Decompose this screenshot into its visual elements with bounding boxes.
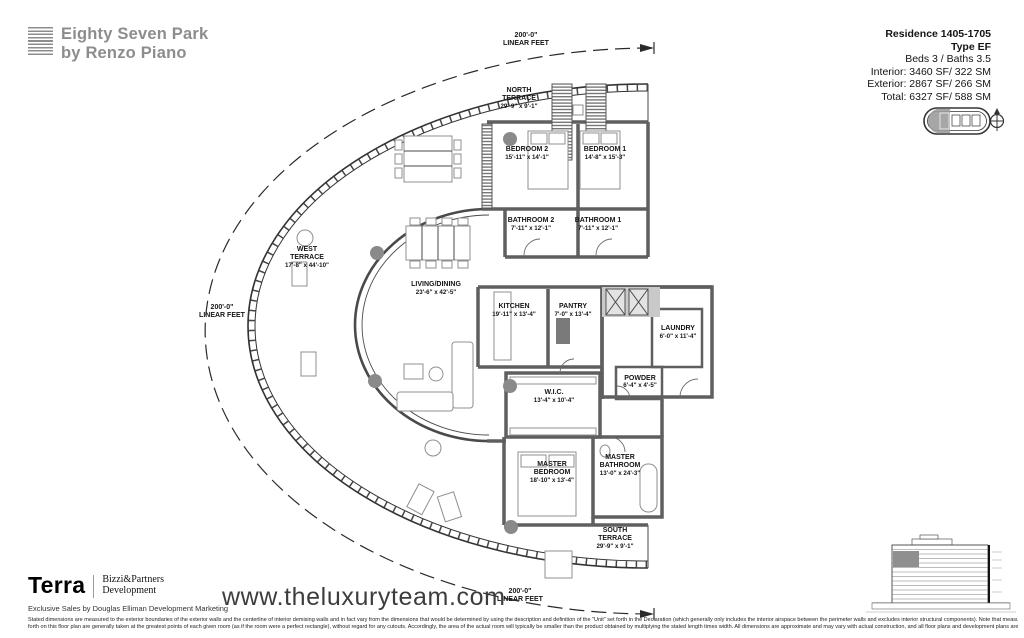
bathtub <box>640 464 657 512</box>
svg-text:6'-0" x 11'-4": 6'-0" x 11'-4" <box>660 333 697 340</box>
room-label-master-bathroom: MASTER BATHROOM 13'-0" x 24'-3" <box>600 454 641 477</box>
svg-text:MASTER: MASTER <box>537 461 567 468</box>
disclaimer-line2: forth on this floor plan are generally t… <box>28 624 1018 631</box>
svg-text:29'-9" x 9'-1": 29'-9" x 9'-1" <box>500 103 537 110</box>
room-label-kitchen: KITCHEN 19'-11" x 13'-4" <box>492 303 536 318</box>
room-label-laundry: LAUNDRY 6'-0" x 11'-4" <box>660 325 697 340</box>
svg-text:TERRACE: TERRACE <box>290 254 324 261</box>
room-label-living-dining: LIVING/DINING 23'-6" x 42'-5" <box>411 281 461 296</box>
room-label-pantry: PANTRY 7'-0" x 13'-4" <box>554 303 591 318</box>
residence-exterior-area: Exterior: 2867 SF/ 266 SM <box>867 78 991 91</box>
residence-beds-baths: Beds 3 / Baths 3.5 <box>867 53 991 66</box>
svg-text:SOUTH: SOUTH <box>603 527 628 534</box>
svg-text:TERRACE: TERRACE <box>502 95 536 102</box>
svg-text:BEDROOM 1: BEDROOM 1 <box>584 146 627 153</box>
svg-text:17'-8" x 44'-10": 17'-8" x 44'-10" <box>285 262 329 269</box>
legal-disclaimer: Stated dimensions are measured to the ex… <box>28 617 1018 631</box>
svg-text:BEDROOM 2: BEDROOM 2 <box>506 146 549 153</box>
svg-text:LAUNDRY: LAUNDRY <box>661 325 695 332</box>
svg-text:15'-11" x 14'-1": 15'-11" x 14'-1" <box>505 154 549 161</box>
terra-logo: Terra <box>28 573 85 597</box>
room-label-north-terrace: NORTH TERRACE 29'-9" x 9'-1" <box>500 87 537 110</box>
elevation-floor-highlight <box>893 551 919 567</box>
disclaimer-line1: Stated dimensions are measured to the ex… <box>28 617 1018 624</box>
svg-text:BEDROOM: BEDROOM <box>534 469 571 476</box>
svg-text:13'-0" x 24'-3": 13'-0" x 24'-3" <box>600 470 641 477</box>
svg-text:23'-6" x 42'-5": 23'-6" x 42'-5" <box>416 289 457 296</box>
key-plan-unit-highlight <box>928 109 950 133</box>
room-label-bathroom-1: BATHROOM 1 7'-11" x 12'-1" <box>575 217 622 232</box>
svg-text:BATHROOM 1: BATHROOM 1 <box>575 217 622 224</box>
partner-line2: Development <box>102 586 164 597</box>
brand-line1: Eighty Seven Park <box>61 25 208 44</box>
compass-icon <box>990 108 1004 131</box>
partner-line1: Bizzi&Partners <box>102 575 164 586</box>
room-label-bathroom-2: BATHROOM 2 7'-11" x 12'-1" <box>508 217 555 232</box>
svg-text:19'-11" x 13'-4": 19'-11" x 13'-4" <box>492 311 536 318</box>
svg-text:LINEAR FEET: LINEAR FEET <box>503 40 550 47</box>
website-url: www.theluxuryteam.com <box>222 583 506 612</box>
partner-logo: Bizzi&Partners Development <box>102 573 164 596</box>
room-label-west-terrace: WEST TERRACE 17'-8" x 44'-10" <box>285 246 329 269</box>
svg-text:7'-11" x 12'-1": 7'-11" x 12'-1" <box>578 225 618 232</box>
building-elevation <box>866 535 1016 612</box>
developer-logos: Terra Bizzi&Partners Development <box>28 573 164 598</box>
residence-info: Residence 1405-1705 Type EF Beds 3 / Bat… <box>867 28 991 104</box>
svg-text:14'-8" x 15'-3": 14'-8" x 15'-3" <box>585 154 626 161</box>
doors <box>524 239 698 452</box>
louvered-wall <box>482 124 492 208</box>
brand-name: Eighty Seven Park by Renzo Piano <box>61 25 208 63</box>
residence-interior-area: Interior: 3460 SF/ 322 SM <box>867 66 991 79</box>
room-label-wic: W.I.C. 13'-4" x 10'-4" <box>534 389 575 404</box>
svg-text:PANTRY: PANTRY <box>559 303 587 310</box>
svg-text:NORTH: NORTH <box>507 87 532 94</box>
svg-text:LIVING/DINING: LIVING/DINING <box>411 281 461 288</box>
svg-text:200'-0": 200'-0" <box>509 588 532 595</box>
svg-text:W.I.C.: W.I.C. <box>544 389 563 396</box>
brand-logo-icon <box>28 27 53 56</box>
room-label-powder: POWDER 6'-4" x 4'-5" <box>623 375 657 389</box>
brand-line2: by Renzo Piano <box>61 44 208 63</box>
logo-divider <box>93 575 94 598</box>
svg-text:200'-0": 200'-0" <box>211 304 234 311</box>
svg-text:BATHROOM: BATHROOM <box>600 462 641 469</box>
linear-feet-top: 200'-0" LINEAR FEET <box>503 32 550 47</box>
svg-text:KITCHEN: KITCHEN <box>498 303 529 310</box>
svg-text:LINEAR FEET: LINEAR FEET <box>199 312 246 319</box>
room-label-bedroom-2: BEDROOM 2 15'-11" x 14'-1" <box>505 146 549 161</box>
residence-title: Residence 1405-1705 <box>867 28 991 41</box>
svg-text:MASTER: MASTER <box>605 454 635 461</box>
svg-text:18'-10" x 13'-4": 18'-10" x 13'-4" <box>530 477 574 484</box>
svg-text:6'-4" x 4'-5": 6'-4" x 4'-5" <box>623 382 657 389</box>
residence-total-area: Total: 6327 SF/ 588 SM <box>867 91 991 104</box>
svg-text:POWDER: POWDER <box>624 375 656 382</box>
svg-text:29'-9" x 9'-1": 29'-9" x 9'-1" <box>596 543 633 550</box>
svg-text:200'-0": 200'-0" <box>515 32 538 39</box>
linear-feet-west: 200'-0" LINEAR FEET <box>199 304 246 319</box>
svg-text:13'-4" x 10'-4": 13'-4" x 10'-4" <box>534 397 575 404</box>
exclusive-sales-note: Exclusive Sales by Douglas Elliman Devel… <box>28 604 228 613</box>
residence-type: Type EF <box>867 41 991 54</box>
svg-text:TERRACE: TERRACE <box>598 535 632 542</box>
room-label-south-terrace: SOUTH TERRACE 29'-9" x 9'-1" <box>596 527 633 550</box>
room-label-bedroom-1: BEDROOM 1 14'-8" x 15'-3" <box>584 146 627 161</box>
svg-text:7'-0" x 13'-4": 7'-0" x 13'-4" <box>554 311 591 318</box>
svg-text:7'-11" x 12'-1": 7'-11" x 12'-1" <box>511 225 551 232</box>
floorplan-sheet: NORTH TERRACE 29'-9" x 9'-1" WEST TERRAC… <box>0 0 1024 638</box>
key-plan <box>924 108 990 134</box>
svg-text:WEST: WEST <box>297 246 318 253</box>
svg-text:BATHROOM 2: BATHROOM 2 <box>508 217 555 224</box>
